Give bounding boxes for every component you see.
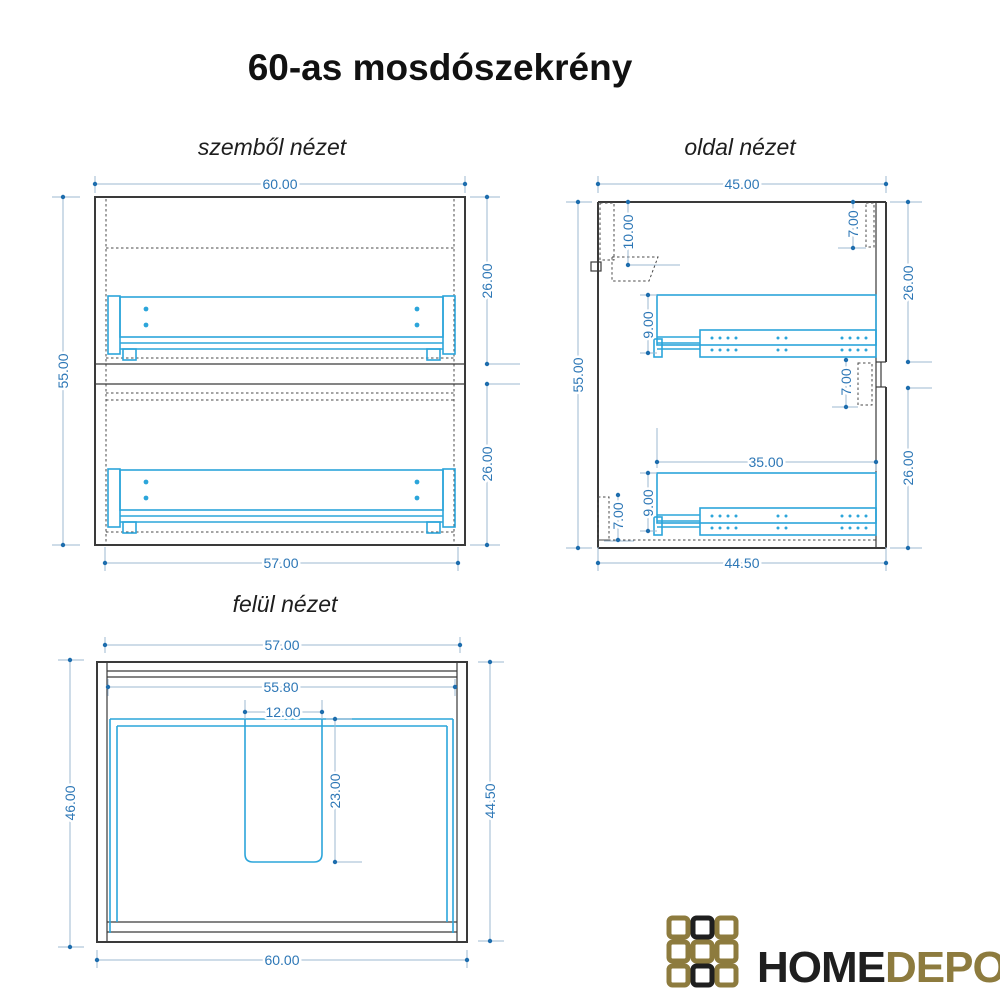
logo-grid-icon	[669, 918, 736, 985]
side-view: oldal nézet	[566, 134, 932, 571]
top-dim-inner-width: 55.80	[263, 679, 298, 695]
logo-text-home: HOME	[757, 943, 885, 992]
logo-wordmark: HOMEDEPO	[757, 943, 1000, 992]
side-dim-slide-length: 35.00	[748, 454, 783, 470]
front-view-label: szemből nézet	[198, 134, 348, 160]
drawing-svg: 60-as mosdószekrény szemből nézet	[0, 0, 1000, 1000]
front-dimensions: 60.00 55.00 26.00 26.00 57.00	[52, 176, 520, 571]
logo-square	[669, 966, 688, 985]
top-dim-cutout-depth: 23.00	[327, 773, 343, 808]
side-dimensions: 45.00 55.00 44.50 10.00 7.00	[566, 176, 932, 571]
top-view-label: felül nézet	[233, 591, 339, 617]
logo-text-depo: DEPO	[885, 943, 1000, 992]
sink-cutout	[245, 719, 322, 862]
logo-square	[693, 918, 712, 937]
top-dim-depth-left: 46.00	[62, 785, 78, 820]
front-view: szemből nézet	[52, 134, 520, 571]
front-lower-drawer	[108, 469, 455, 533]
front-dim-drawer-upper: 26.00	[479, 263, 495, 298]
top-dim-cutout-width: 12.00	[265, 704, 300, 720]
front-dim-width-bottom: 57.00	[263, 555, 298, 571]
top-view: felül nézet 57.00	[58, 591, 504, 968]
side-dim-front-overlap-mid: 7.00	[838, 368, 854, 395]
side-dim-front-upper: 26.00	[900, 265, 916, 300]
front-cabinet-outline	[95, 197, 465, 545]
side-dim-height-left: 55.00	[570, 357, 586, 392]
side-upper-drawer-slide	[654, 295, 876, 357]
logo-square	[717, 966, 736, 985]
top-countertop-outline	[110, 719, 453, 933]
front-dim-height-left: 55.00	[55, 353, 71, 388]
homedepo-logo: HOMEDEPO	[669, 918, 1000, 992]
top-dim-depth-right: 44.50	[482, 783, 498, 818]
side-dim-front-overlap-top: 7.00	[845, 210, 861, 237]
front-dim-width-top: 60.00	[262, 176, 297, 192]
side-view-label: oldal nézet	[684, 134, 797, 160]
logo-square	[669, 942, 688, 961]
side-lower-drawer-slide	[654, 473, 876, 535]
front-upper-drawer	[108, 296, 455, 360]
page-title: 60-as mosdószekrény	[248, 47, 633, 88]
side-dim-depth-bottom: 44.50	[724, 555, 759, 571]
logo-square	[717, 918, 736, 937]
front-dim-drawer-lower: 26.00	[479, 446, 495, 481]
side-dim-front-lower: 26.00	[900, 450, 916, 485]
technical-drawing-page: 60-as mosdószekrény szemből nézet	[0, 0, 1000, 1000]
top-dimensions: 57.00 55.80 12.00 23.00 46.00	[58, 637, 504, 968]
side-dim-depth-top: 45.00	[724, 176, 759, 192]
side-dim-top-rail: 10.00	[620, 214, 636, 249]
logo-square	[669, 918, 688, 937]
logo-square	[693, 966, 712, 985]
logo-square	[693, 942, 712, 961]
side-dim-slide-lower: 9.00	[640, 489, 656, 516]
top-dim-width-bottom: 60.00	[264, 952, 299, 968]
side-dim-slide-upper: 9.00	[640, 311, 656, 338]
top-dim-width-top: 57.00	[264, 637, 299, 653]
side-dim-bottom-rail: 7.00	[610, 502, 626, 529]
logo-square	[717, 942, 736, 961]
